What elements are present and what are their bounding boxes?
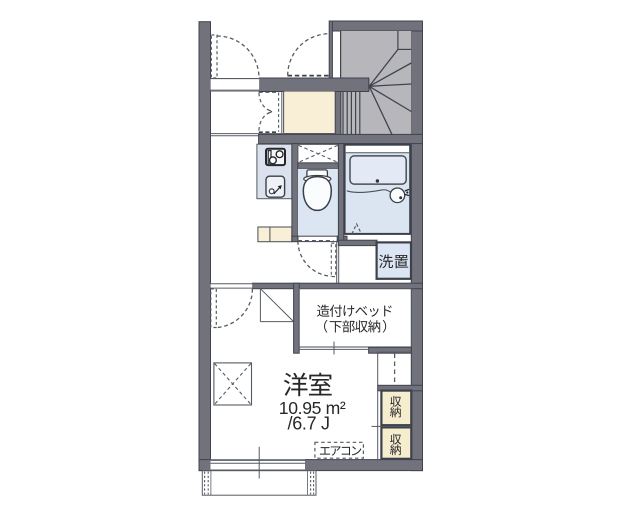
- svg-text:/6.7 J: /6.7 J: [288, 414, 330, 434]
